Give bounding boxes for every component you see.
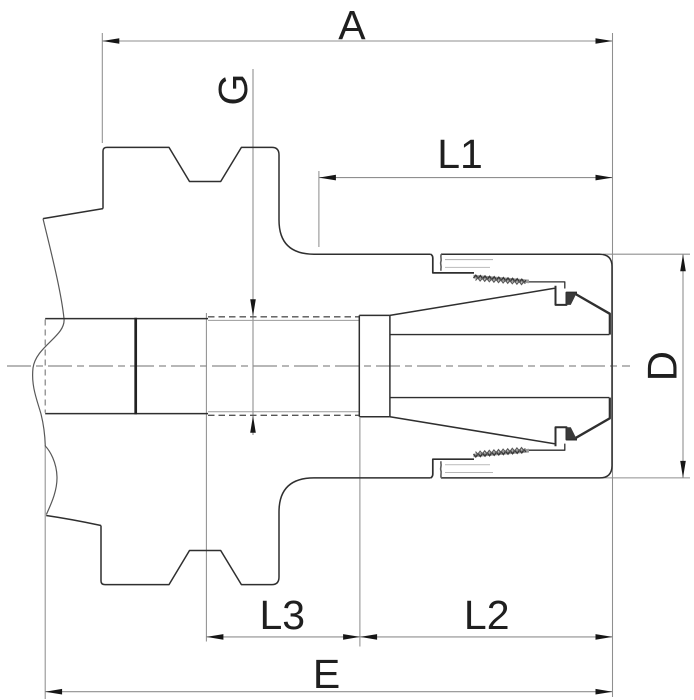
svg-text:L1: L1 [437,131,483,177]
svg-text:L3: L3 [259,592,305,638]
svg-text:L2: L2 [464,592,510,638]
svg-text:E: E [313,651,340,697]
svg-text:D: D [639,351,686,381]
svg-text:A: A [338,2,366,48]
svg-text:G: G [210,74,256,106]
